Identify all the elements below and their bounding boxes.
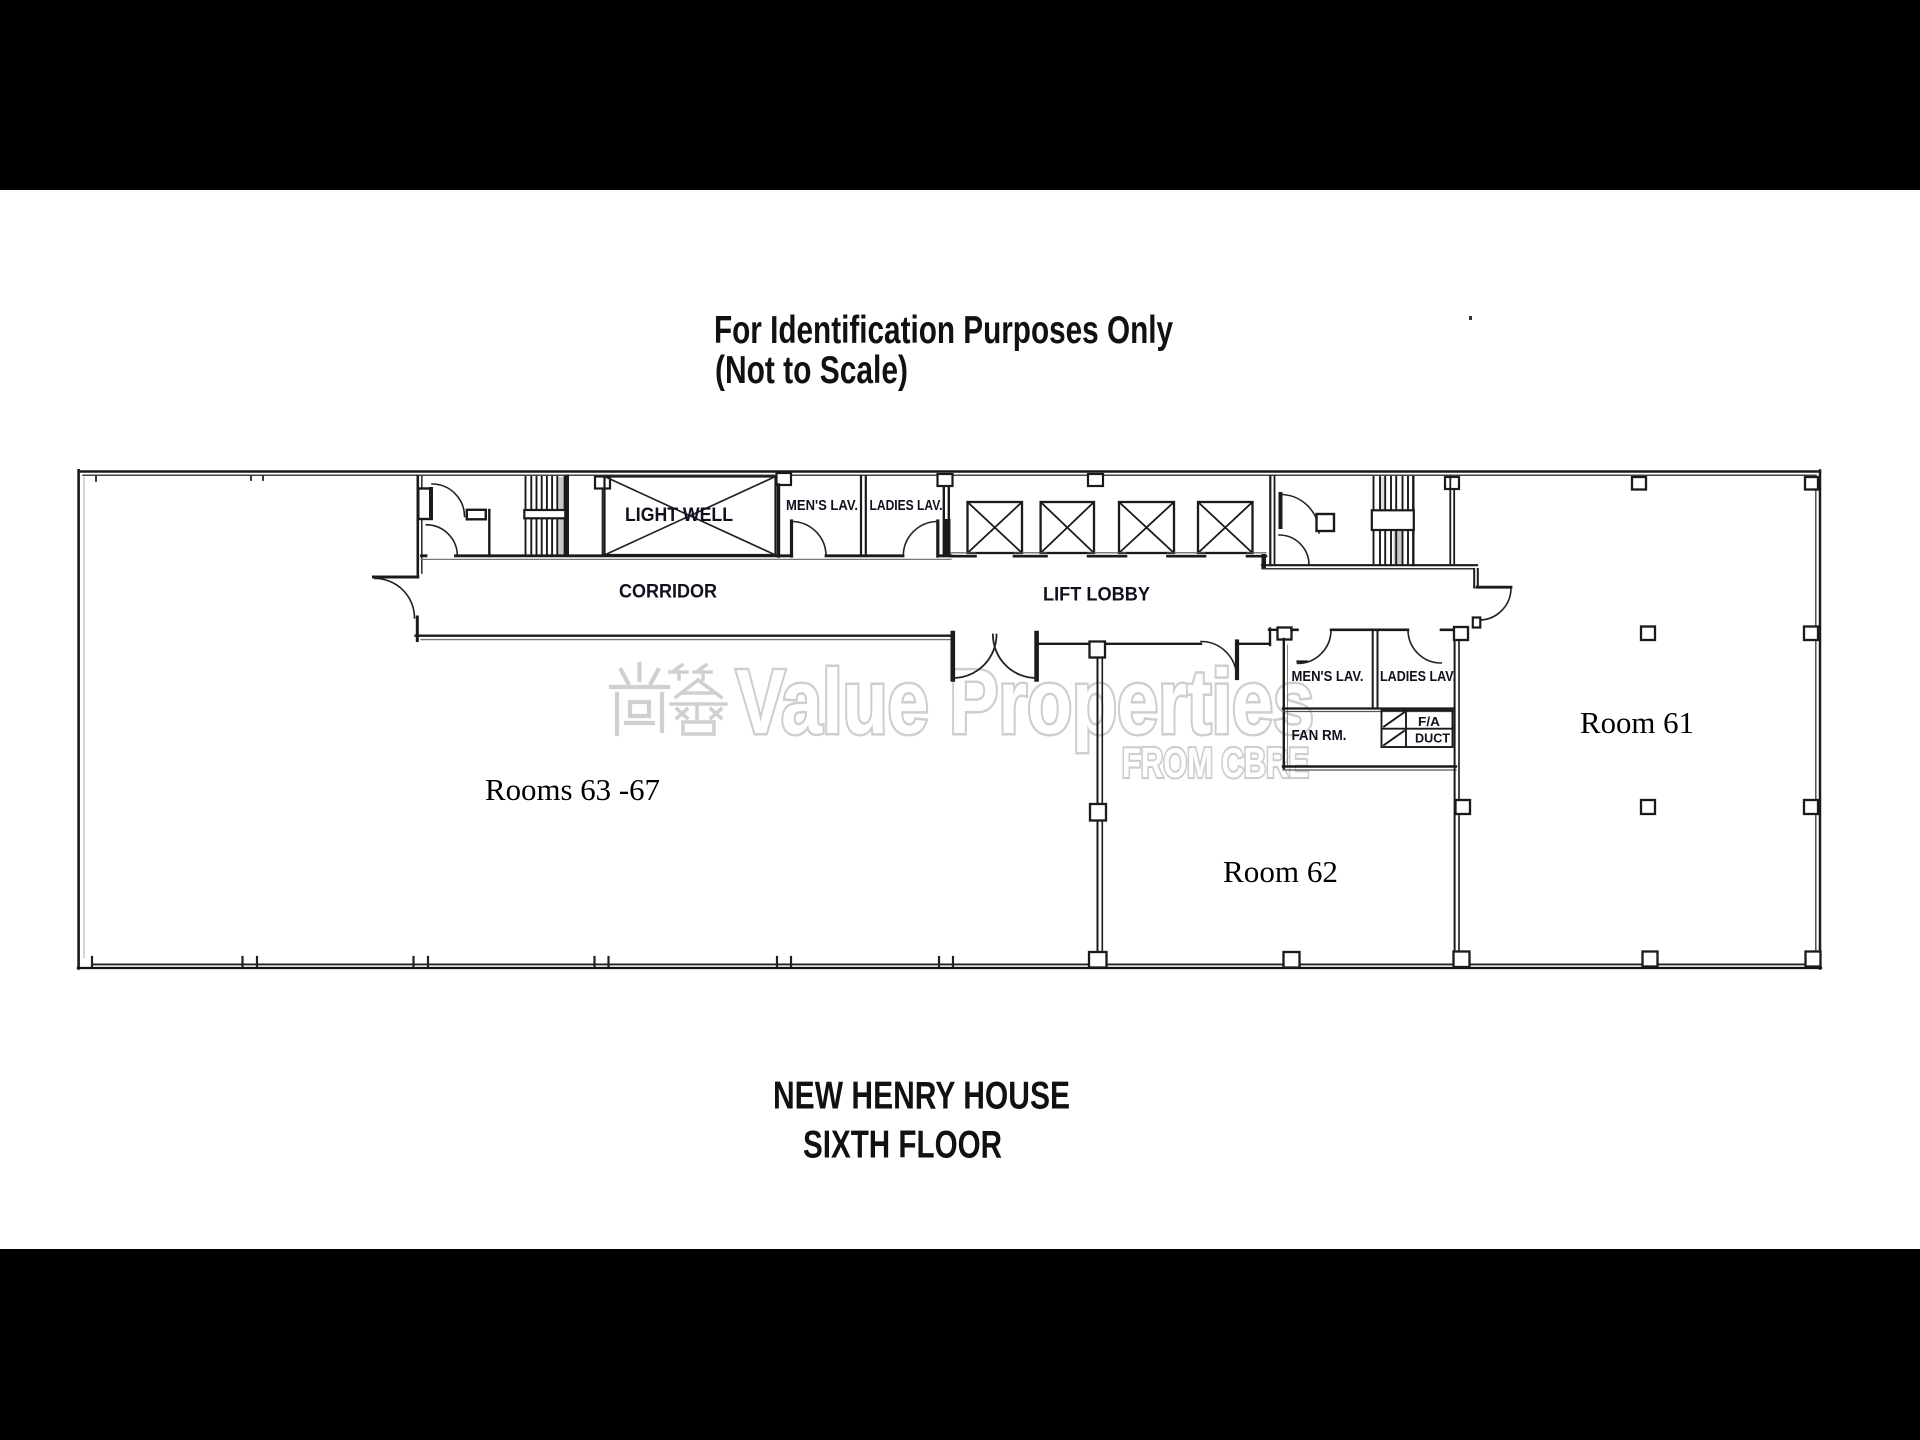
svg-text:CORRIDOR: CORRIDOR: [619, 581, 717, 603]
svg-text:FAN RM.: FAN RM.: [1292, 728, 1347, 744]
svg-text:FROM CBRE: FROM CBRE: [1122, 739, 1309, 786]
svg-text:LIFT LOBBY: LIFT LOBBY: [1043, 584, 1150, 606]
svg-text:LIGHT WELL: LIGHT WELL: [625, 504, 733, 526]
svg-text:SIXTH FLOOR: SIXTH FLOOR: [803, 1124, 1002, 1167]
svg-text:(Not to Scale): (Not to Scale): [715, 349, 908, 392]
svg-text:LADIES LAV.: LADIES LAV.: [1380, 669, 1456, 685]
svg-text:NEW HENRY HOUSE: NEW HENRY HOUSE: [773, 1075, 1070, 1118]
svg-text:Rooms 63 -67: Rooms 63 -67: [485, 772, 660, 807]
svg-text:LADIES LAV.: LADIES LAV.: [870, 498, 943, 514]
svg-text:MEN'S LAV.: MEN'S LAV.: [1292, 669, 1364, 685]
svg-text:For Identification Purposes On: For Identification Purposes Only: [714, 309, 1173, 352]
svg-text:MEN'S LAV.: MEN'S LAV.: [786, 498, 858, 514]
svg-text:Room 61: Room 61: [1580, 705, 1694, 740]
svg-text:Room 62: Room 62: [1223, 854, 1338, 889]
svg-text:DUCT: DUCT: [1415, 732, 1450, 746]
svg-text:Value Properties: Value Properties: [736, 652, 1314, 753]
svg-text:F/A: F/A: [1418, 715, 1440, 729]
